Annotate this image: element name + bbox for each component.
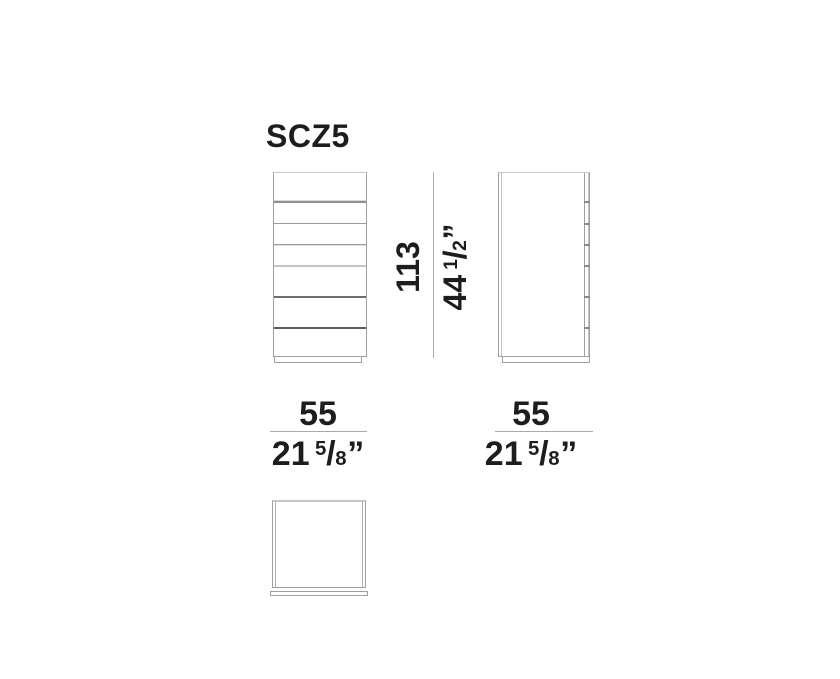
width-imperial-fraction: 5/8 <box>315 435 346 473</box>
depth-dimension-line <box>495 431 593 432</box>
drawer-divider-line <box>274 296 366 298</box>
top-view-drawing <box>272 500 366 588</box>
depth-imperial-fraction: 5/8 <box>528 435 559 473</box>
front-plinth-base <box>274 356 362 363</box>
depth-imperial-label: 215/8” <box>469 437 593 471</box>
inch-mark: ” <box>437 224 473 240</box>
width-imperial-whole: 21 <box>272 435 310 473</box>
drawer-divider-line <box>274 244 366 245</box>
drawer-divider-tick <box>584 244 590 246</box>
width-dimension-line <box>270 431 367 432</box>
technical-drawing-page: SCZ5 113 441/2” 55 215/8” 55 <box>0 0 840 679</box>
height-imperial-label: 441/2” <box>439 212 475 322</box>
height-metric-label: 113 <box>392 232 426 302</box>
product-code-title: SCZ5 <box>266 120 350 152</box>
side-view-drawing <box>498 172 590 357</box>
side-plinth-base <box>502 356 590 363</box>
drawer-divider-tick <box>584 327 590 329</box>
drawer-divider-tick <box>584 223 590 225</box>
height-imperial-whole: 44 <box>437 275 473 311</box>
drawer-divider-line <box>274 223 366 224</box>
drawer-divider-tick <box>584 201 590 203</box>
top-view-front-panel <box>270 591 368 596</box>
drawer-divider-tick <box>584 296 590 298</box>
width-imperial-label: 215/8” <box>256 437 380 471</box>
drawer-divider-tick <box>584 265 590 267</box>
drawer-divider-line <box>274 201 366 203</box>
height-dimension-line <box>433 172 434 358</box>
side-panel-edge-line <box>501 173 502 356</box>
top-view-side-panel-line <box>362 502 363 587</box>
drawer-divider-line <box>274 327 366 329</box>
front-view-drawing <box>273 172 367 357</box>
height-imperial-fraction: 1/2 <box>437 240 473 270</box>
drawer-divider-line <box>274 265 366 267</box>
depth-metric-label: 55 <box>481 397 581 431</box>
depth-imperial-whole: 21 <box>485 435 523 473</box>
inch-mark: ” <box>560 435 577 473</box>
inch-mark: ” <box>347 435 364 473</box>
top-view-side-panel-line <box>275 502 276 587</box>
width-metric-label: 55 <box>268 397 368 431</box>
